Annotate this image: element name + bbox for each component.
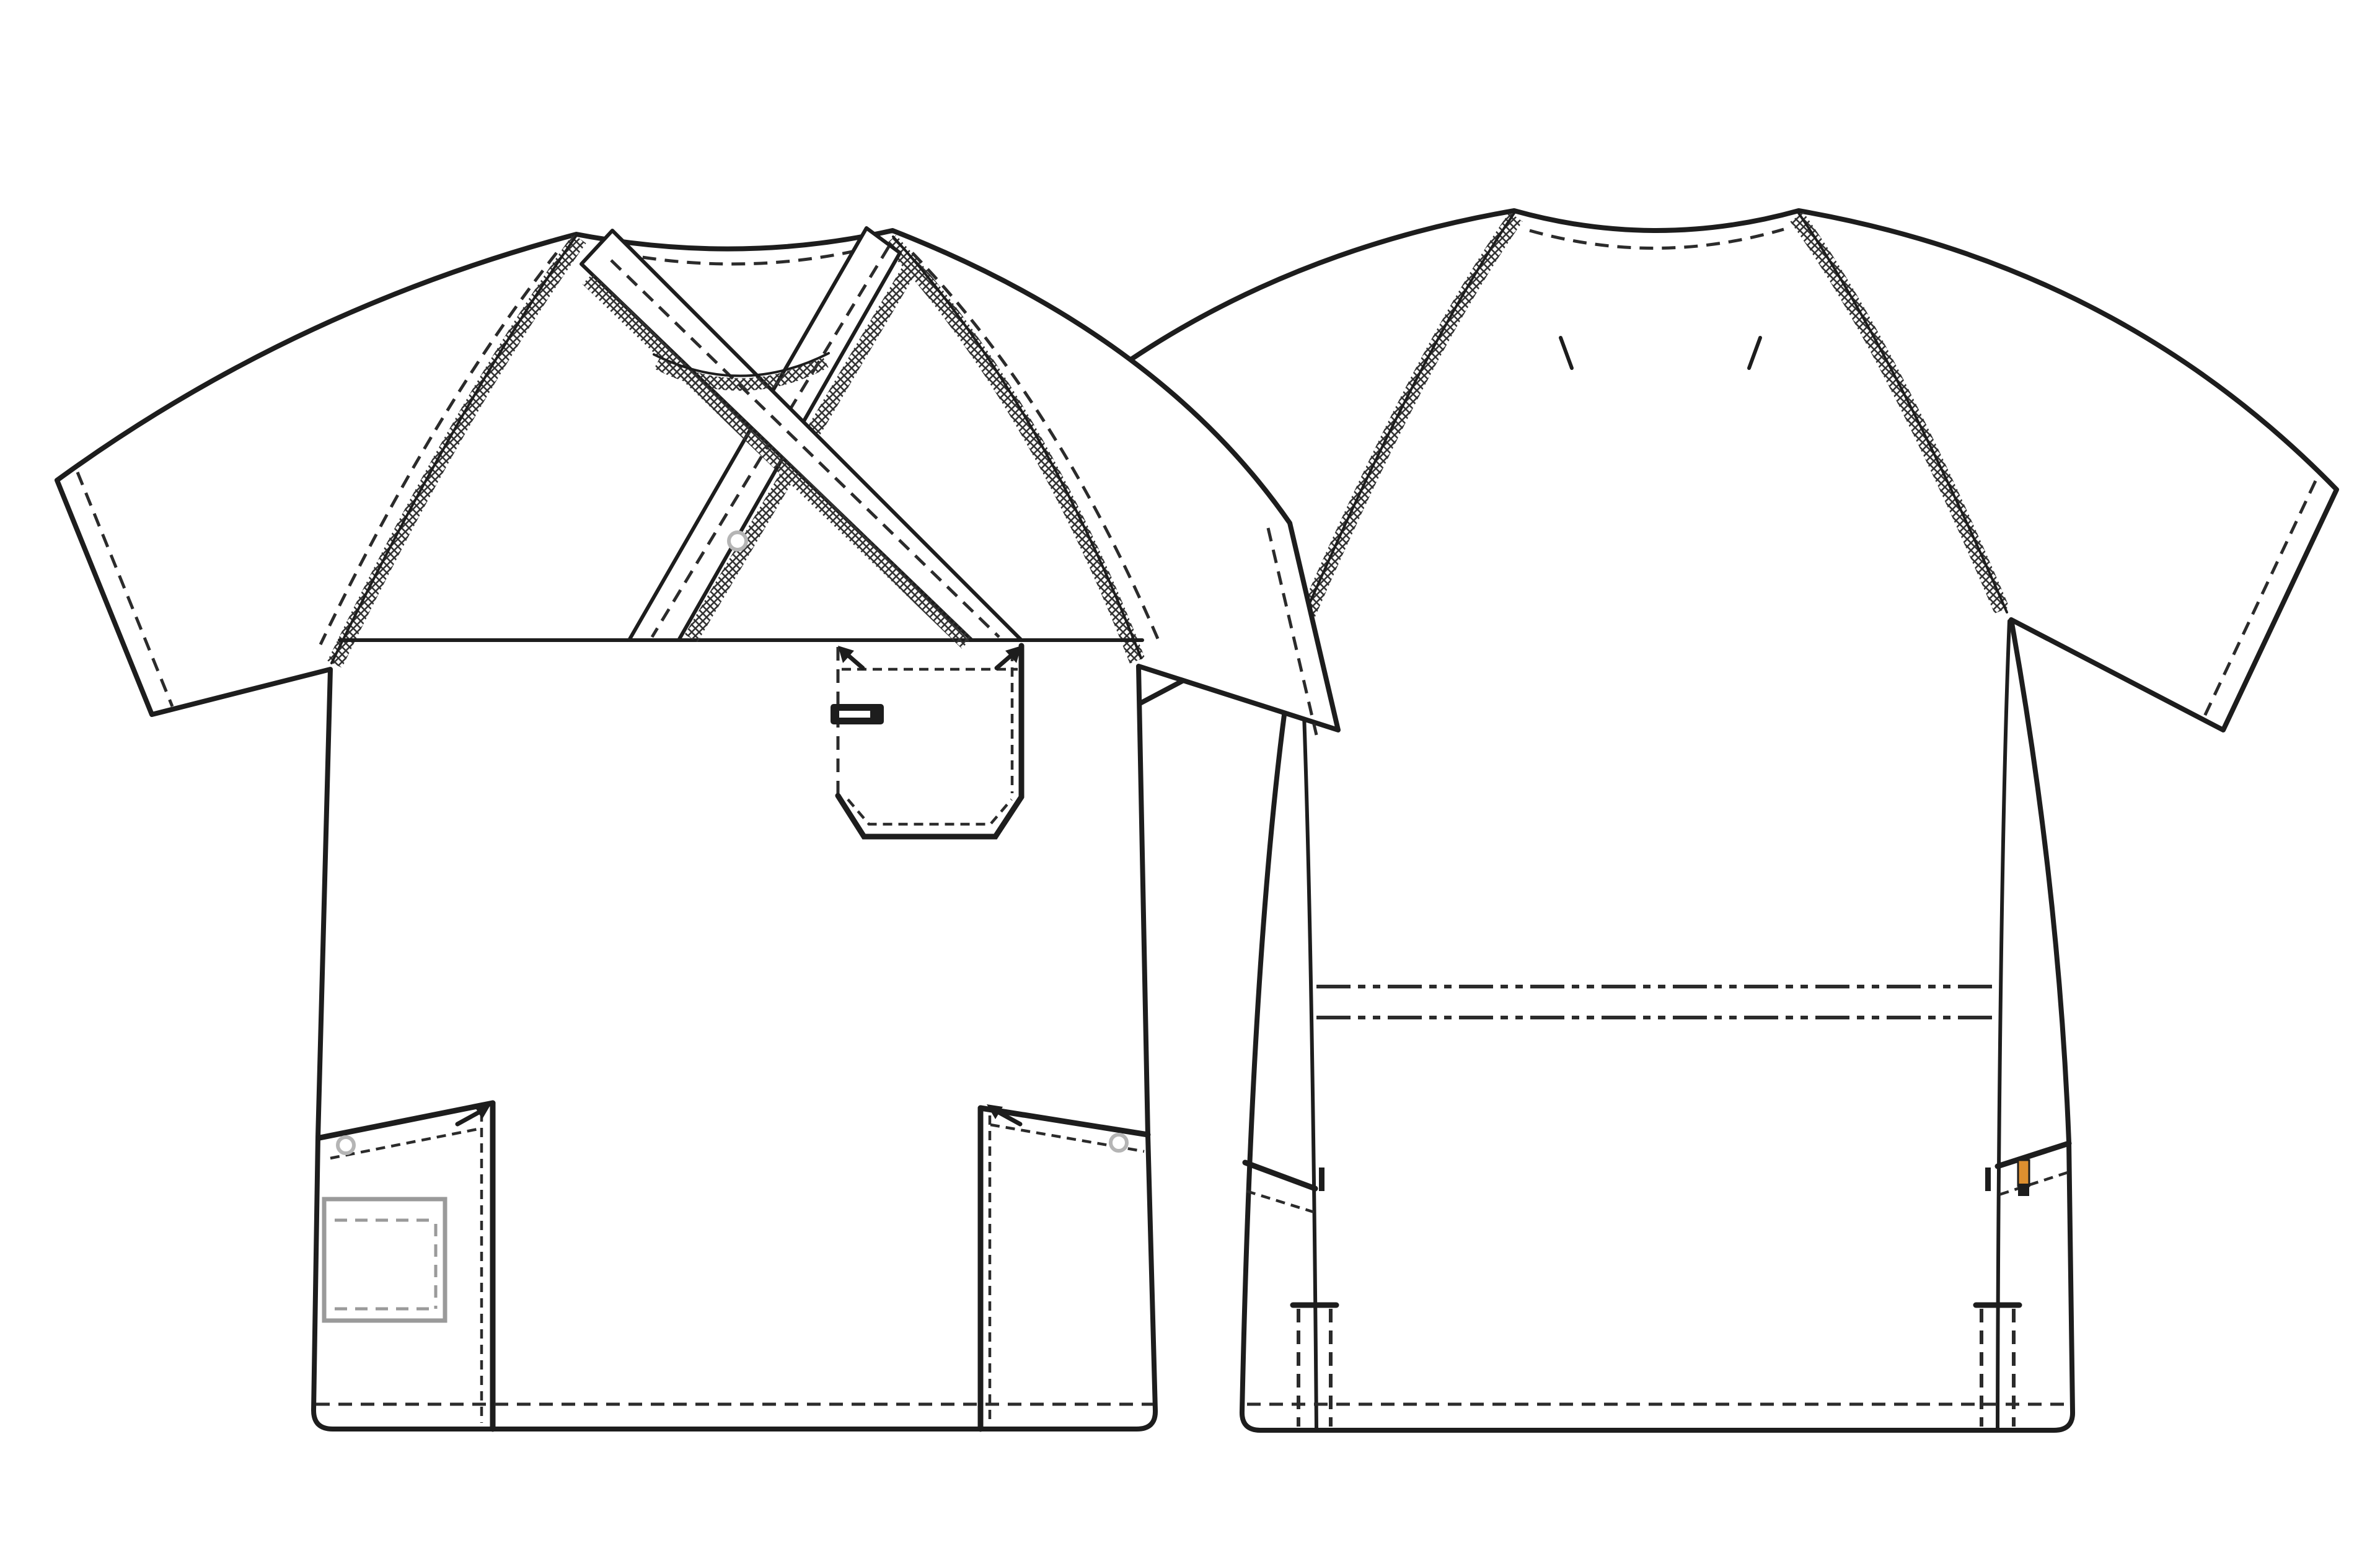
garment-flat-sketch [0,0,2380,1548]
back-view [976,211,2337,1430]
brand-label-orange [2018,1160,2029,1196]
front-view [57,228,1338,1429]
back-left-bartack [1319,1168,1324,1191]
back-silhouette [976,211,2337,1430]
pen-slot-badge-loop [831,704,884,724]
lower-right-pocket-snap [1111,1135,1127,1151]
front-silhouette [57,231,1338,1429]
crossover-snap-button [729,532,746,550]
back-right-bartack [1985,1168,1991,1191]
canvas [0,0,2380,1548]
lower-left-pocket-snap [338,1137,354,1153]
